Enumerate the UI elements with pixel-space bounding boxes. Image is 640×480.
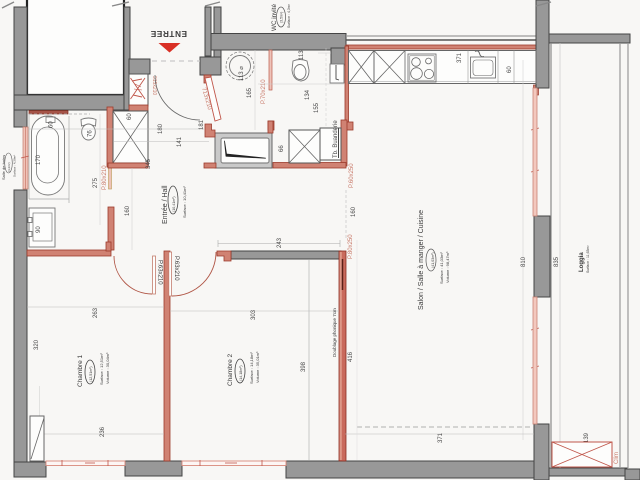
svg-text:P.70x210: P.70x210	[261, 79, 267, 104]
svg-text:Doublage phonique 7cm: Doublage phonique 7cm	[332, 308, 337, 357]
svg-text:139: 139	[584, 432, 590, 443]
svg-text:60: 60	[127, 113, 133, 120]
svg-text:Surface : 41,03m²: Surface : 41,03m²	[439, 252, 444, 284]
svg-text:WC invité: WC invité	[271, 4, 278, 31]
svg-text:236: 236	[100, 426, 106, 437]
svg-text:275: 275	[93, 177, 99, 188]
svg-text:134: 134	[305, 89, 311, 100]
svg-text:Chambre 2: Chambre 2	[227, 353, 234, 386]
svg-text:P.80x210: P.80x210	[102, 165, 108, 190]
svg-text:P.63x210: P.63x210	[173, 256, 179, 281]
svg-text:60: 60	[49, 121, 55, 128]
svg-text:160: 160	[125, 205, 131, 216]
svg-text:Clim: Clim	[614, 452, 620, 464]
svg-text:60: 60	[507, 66, 513, 73]
svg-text:141: 141	[177, 136, 183, 147]
svg-text:810: 810	[521, 256, 527, 267]
svg-text:(12,51m²): (12,51m²)	[89, 366, 93, 382]
svg-text:Surface : 4,3m²: Surface : 4,3m²	[287, 3, 291, 28]
svg-text:835: 835	[554, 256, 560, 267]
svg-text:P.80x250: P.80x250	[348, 234, 354, 259]
svg-text:170: 170	[36, 154, 42, 165]
svg-text:Volume : 30,04m³: Volume : 30,04m³	[105, 352, 110, 384]
svg-text:Surface : 11,63m²: Surface : 11,63m²	[586, 245, 590, 273]
svg-text:Volume : 98,47m³: Volume : 98,47m³	[445, 251, 450, 283]
svg-text:Loggia: Loggia	[579, 252, 585, 272]
svg-text:398: 398	[301, 361, 307, 372]
svg-text:180: 180	[158, 123, 164, 134]
svg-text:90: 90	[36, 226, 42, 233]
svg-text:(4,2m²): (4,2m²)	[7, 162, 11, 172]
svg-text:Volume : 35,01m³: Volume : 35,01m³	[255, 351, 260, 383]
svg-text:66: 66	[279, 145, 285, 152]
svg-text:243: 243	[277, 237, 283, 248]
svg-text:P.60x250: P.60x250	[349, 163, 355, 188]
svg-text:113 ⌀: 113 ⌀	[239, 66, 245, 81]
svg-text:(41,03m²): (41,03m²)	[431, 252, 435, 268]
svg-text:ENTREE: ENTREE	[150, 29, 187, 38]
svg-text:113: 113	[299, 50, 305, 60]
svg-text:371: 371	[438, 432, 444, 443]
svg-text:76: 76	[88, 130, 94, 137]
svg-text:371: 371	[457, 52, 463, 63]
svg-text:(3,5m²): (3,5m²)	[280, 12, 284, 23]
svg-text:Surface : 14,18m²: Surface : 14,18m²	[249, 352, 254, 384]
svg-text:263: 263	[93, 307, 99, 318]
svg-text:416: 416	[348, 351, 354, 362]
svg-text:303: 303	[251, 309, 257, 320]
svg-text:165: 165	[247, 87, 253, 98]
svg-text:P.63x210: P.63x210	[157, 260, 163, 285]
svg-text:181: 181	[199, 119, 205, 130]
svg-text:Salon / Salle à manger / Cuisi: Salon / Salle à manger / Cuisine	[418, 210, 425, 310]
svg-text:Surface : 4,29m²: Surface : 4,29m²	[13, 155, 17, 177]
svg-text:Chambre 1: Chambre 1	[77, 354, 84, 387]
svg-text:345: 345	[146, 158, 152, 169]
svg-text:320: 320	[34, 339, 40, 350]
svg-text:Surface : 10,41m²: Surface : 10,41m²	[182, 186, 187, 218]
svg-text:155: 155	[314, 102, 320, 113]
svg-text:(14,18m²): (14,18m²)	[239, 365, 243, 381]
svg-text:(10,41m²): (10,41m²)	[172, 196, 176, 212]
svg-text:Tb. Buanderie: Tb. Buanderie	[333, 120, 339, 158]
svg-text:160: 160	[351, 206, 357, 217]
svg-text:Surface : 12,51m²: Surface : 12,51m²	[99, 353, 104, 385]
